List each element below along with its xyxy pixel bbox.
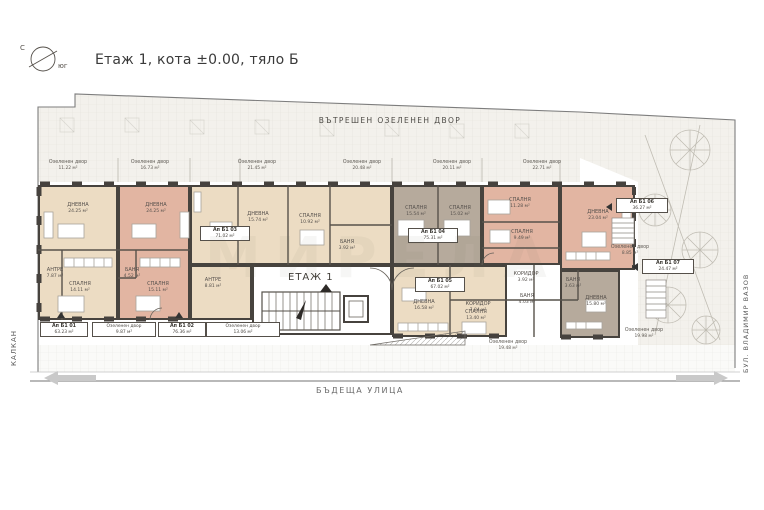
apartment-caption: Ап Б1 0276.36 м²	[158, 322, 206, 337]
room-label: СПАЛНЯ14.11 м²	[60, 282, 100, 293]
yard-label: Озеленен двор21.45 м²	[225, 160, 289, 171]
room-label: ДНЕВНА24.25 м²	[58, 203, 98, 214]
floor-core-label: ЕТАЖ 1	[288, 272, 334, 283]
apartment-caption: Ап Б1 0567.02 м²	[415, 277, 465, 292]
yard-label: Озеленен двор11.22 м²	[36, 160, 100, 171]
yard-label: Озеленен двор19.48 м²	[478, 340, 538, 351]
yard-label: Озеленен двор16.73 м²	[118, 160, 182, 171]
room-label: ДНЕВНА15.74 м²	[240, 212, 276, 223]
inner-courtyard-label: ВЪТРЕШЕН ОЗЕЛЕНЕН ДВОР	[295, 116, 485, 125]
apartment-b1-03	[190, 185, 392, 265]
right-street-label: БУЛ. ВЛАДИМИР ВАЗОВ	[742, 238, 750, 373]
room-label: АНТРЕ7.87 м²	[40, 268, 70, 279]
room-label: БАНЯ4.52 м²	[118, 268, 146, 279]
floor-plan-sheet: С юг Етаж 1, кота ±0.00, тяло Б ВЪТРЕШЕН…	[0, 0, 764, 510]
room-label: СПАЛНЯ15.54 м²	[396, 206, 436, 217]
room-label: СПАЛНЯ15.11 м²	[138, 282, 178, 293]
street-label: БЪДЕЩА УЛИЦА	[290, 386, 430, 395]
yard-label: Озеленен двор20.11 м²	[420, 160, 484, 171]
apartment-caption: Ап Б1 0724.47 м²	[642, 259, 694, 274]
apartment-caption: Ап Б1 0371.02 м²	[200, 226, 250, 241]
room-label: СПАЛНЯ9.49 м²	[502, 230, 542, 241]
apartment-caption: Ап Б1 0163.23 м²	[40, 322, 88, 337]
apartment-b1-04	[392, 185, 482, 265]
street-direction-arrows	[44, 371, 728, 385]
yard-label: Озеленен двор20.48 м²	[330, 160, 394, 171]
room-label: БАНЯ3.92 м²	[334, 240, 360, 251]
room-label: БАНЯ3.63 м²	[560, 278, 586, 289]
room-label: СПАЛНЯ10.92 м²	[292, 214, 328, 225]
room-label: ДНЕВНА16.58 м²	[404, 300, 444, 311]
room-label: АНТРЕ8.81 м²	[198, 278, 228, 289]
room-label: ДНЕВНА23.04 м²	[578, 210, 618, 221]
yard-caption: Озеленен двор9.87 м²	[92, 322, 156, 337]
room-label: ДНЕВНА24.25 м²	[136, 203, 176, 214]
compass-north-label: С	[20, 44, 25, 52]
yard-caption: Озеленен двор13.06 м²	[206, 322, 280, 337]
sheet-title: Етаж 1, кота ±0.00, тяло Б	[95, 52, 299, 68]
yard-label: Озеленен двор19.98 м²	[616, 328, 672, 339]
room-label: КОРИДОР3.92 м²	[508, 272, 544, 283]
apartment-caption: Ап Б1 0636.27 м²	[616, 198, 668, 213]
room-label: БАНЯ4.03 м²	[512, 294, 542, 305]
room-label: СПАЛНЯ11.28 м²	[500, 198, 540, 209]
compass-south-label: юг	[58, 62, 68, 70]
left-boundary-label: КАЛКАН	[10, 296, 18, 366]
room-label: СПАЛНЯ15.02 м²	[440, 206, 480, 217]
apartment-caption: Ап Б1 0475.31 м²	[408, 228, 458, 243]
room-label: ДНЕВНА15.80 м²	[576, 296, 616, 307]
yard-label: Озеленен двор22.71 м²	[510, 160, 574, 171]
apartment-b1-03-lower	[190, 265, 252, 320]
room-label: СПАЛНЯ13.40 м²	[456, 310, 496, 321]
yard-label: Озеленен двор8.85 м²	[604, 245, 656, 256]
